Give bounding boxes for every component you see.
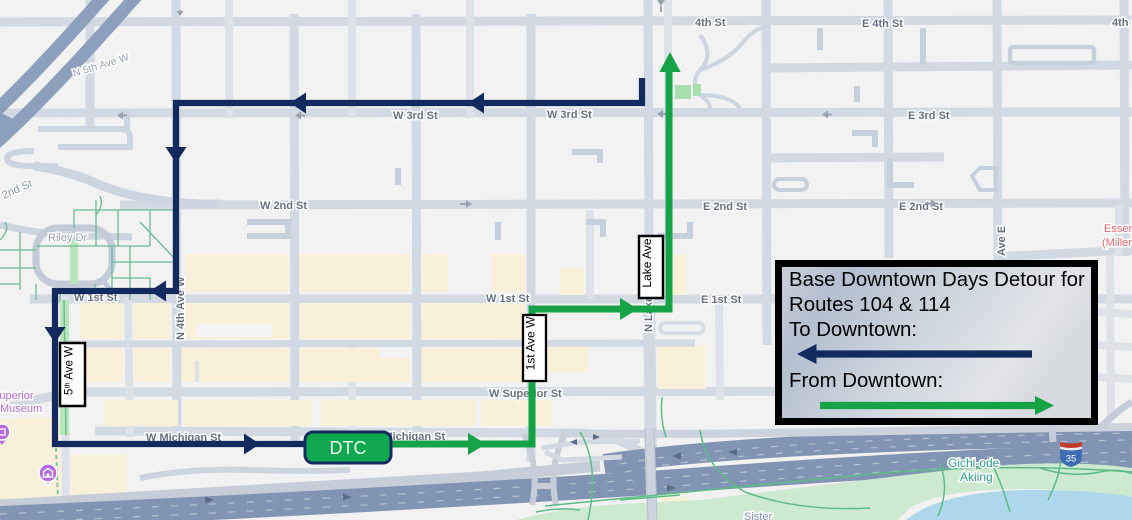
svg-text:W 2nd St: W 2nd St xyxy=(260,200,307,212)
svg-text:Routes 104 & 114: Routes 104 & 114 xyxy=(789,294,951,316)
svg-text:DTC: DTC xyxy=(330,438,367,458)
svg-text:From Downtown:: From Downtown: xyxy=(789,370,943,392)
svg-text:W 3rd St: W 3rd St xyxy=(393,110,438,122)
svg-text:W 1st St: W 1st St xyxy=(486,293,530,305)
svg-text:Essentia: Essentia xyxy=(1104,223,1132,235)
svg-text:E 3rd St: E 3rd St xyxy=(908,110,950,122)
svg-text:E 2nd St: E 2nd St xyxy=(899,201,943,213)
svg-text:4th St: 4th St xyxy=(695,17,726,29)
svg-text:To Downtown:: To Downtown: xyxy=(789,319,917,341)
svg-text:Museum: Museum xyxy=(0,403,42,415)
svg-text:W Superior St: W Superior St xyxy=(489,388,562,400)
svg-text:Riley Dr: Riley Dr xyxy=(48,232,87,244)
svg-text:Superior: Superior xyxy=(0,390,34,402)
svg-text:Akiing: Akiing xyxy=(960,470,993,484)
svg-text:E 1st St: E 1st St xyxy=(701,294,742,306)
svg-text:Base Downtown Days Detour for: Base Downtown Days Detour for xyxy=(789,269,1085,291)
svg-text:4th St: 4th St xyxy=(1112,17,1132,29)
svg-text:Ave E: Ave E xyxy=(996,226,1008,256)
svg-text:35: 35 xyxy=(1066,454,1077,465)
svg-text:(Miller-D: (Miller-D xyxy=(1102,237,1132,249)
svg-text:Gichi-ode: Gichi-ode xyxy=(948,456,1000,470)
svg-text:Lake Ave: Lake Ave xyxy=(640,238,654,287)
svg-text:Sister: Sister xyxy=(744,511,772,520)
svg-text:1st Ave W: 1st Ave W xyxy=(524,316,538,370)
svg-text:E 4th St: E 4th St xyxy=(862,18,903,30)
svg-text:E 2nd St: E 2nd St xyxy=(703,201,747,213)
svg-text:W 3rd St: W 3rd St xyxy=(547,109,592,121)
